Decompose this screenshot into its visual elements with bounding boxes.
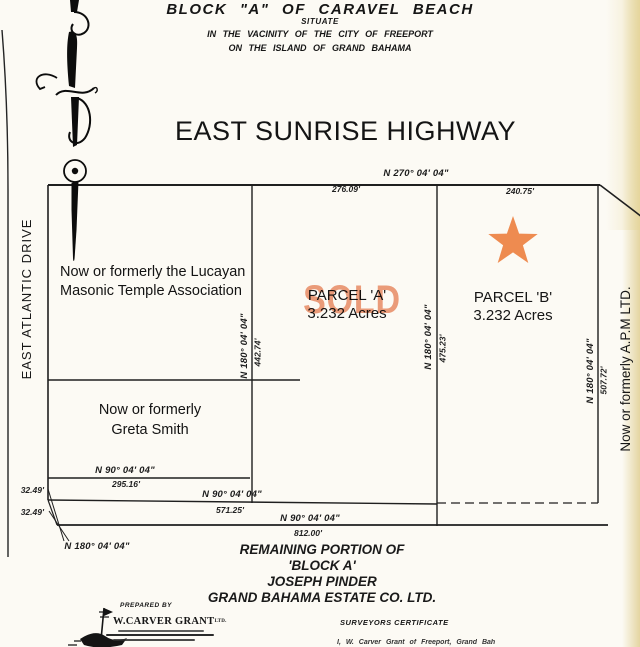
greta-parcel-line2: Greta Smith [70, 420, 230, 440]
lighthouse-icon [68, 608, 127, 647]
scanned-survey-plat: BLOCK "A" OF CARAVEL BEACH SITUATE IN TH… [0, 0, 640, 647]
remaining-line1: REMAINING PORTION OF [142, 542, 502, 558]
dim-ab-divider-distance: 475.23' [438, 313, 449, 385]
star-icon [488, 216, 537, 263]
dim-mid-bearing: N 90° 04' 04" [184, 489, 280, 501]
island-label: ON THE ISLAND OF GRAND BAHAMA [0, 43, 640, 53]
road-edge-line [2, 30, 8, 557]
apm-owner-label: Now or formerly A.P.M LTD. [618, 249, 634, 489]
remaining-line2: 'BLOCK A' [142, 558, 502, 574]
east-atlantic-drive-label: EAST ATLANTIC DRIVE [19, 194, 35, 404]
dim-east-boundary-bearing: N 180° 04' 04" [585, 323, 597, 419]
surveyor-name: W.CARVER GRANTLTD. [113, 616, 227, 627]
remaining-line3: JOSEPH PINDER [142, 574, 502, 590]
masonic-parcel-line1: Now or formerly the Lucayan [60, 263, 245, 282]
greta-parcel-label: Now or formerly Greta Smith [70, 400, 230, 440]
dim-east-boundary-distance: 507.72' [599, 345, 610, 417]
east-sunrise-highway-label: EAST SUNRISE HIGHWAY [175, 116, 445, 147]
masonic-parcel-line2: Masonic Temple Association [60, 282, 242, 301]
vicinity-label: IN THE VACINITY OF THE CITY OF FREEPORT [0, 29, 640, 39]
dim-offset-b: 32.49' [10, 507, 44, 518]
parcel-b-name: PARCEL 'B' [453, 289, 573, 306]
situate-label: SITUATE [0, 17, 640, 26]
dim-offset-a: 32.49' [10, 485, 44, 496]
surveyor-address-line [118, 630, 204, 632]
remaining-line4: GRAND BAHAMA ESTATE CO. LTD. [142, 590, 502, 606]
remaining-portion-label: REMAINING PORTION OF 'BLOCK A' JOSEPH PI… [142, 542, 502, 606]
greta-parcel-line1: Now or formerly [70, 400, 230, 420]
sold-stamp: SOLD [284, 278, 420, 323]
dim-mid-distance: 571.25' [202, 505, 258, 516]
dim-top-bearing: N 270° 04' 04" [368, 168, 464, 180]
dim-greta-distance: 295.16' [98, 479, 154, 490]
dim-south-distance: 812.00' [280, 528, 336, 539]
dim-offset-bearing: N 180° 04' 04" [49, 541, 145, 553]
dim-ab-divider-bearing: N 180° 04' 04" [423, 289, 435, 385]
dim-masonic-divider-distance: 442.74' [253, 317, 264, 389]
surveyor-name-suffix: LTD. [214, 619, 226, 624]
plat-title: BLOCK "A" OF CARAVEL BEACH [0, 1, 640, 18]
dim-greta-bearing: N 90° 04' 04" [77, 465, 173, 477]
surveyor-name-text: W.CARVER GRANT [113, 616, 214, 627]
dim-south-bearing: N 90° 04' 04" [262, 513, 358, 525]
certificate-text: I, W. Carver Grant of Freeport, Grand Ba… [337, 639, 637, 647]
dim-masonic-divider-bearing: N 180° 04' 04" [239, 298, 251, 394]
prepared-by-label: PREPARED BY [120, 602, 172, 609]
leader-lines [48, 489, 69, 541]
north-arrow-icon [36, 0, 97, 261]
surveyors-certificate-title: SURVEYORS CERTIFICATE [340, 618, 449, 627]
dim-top-distance-a: 276.09' [318, 184, 374, 195]
dim-top-distance-b: 240.75' [490, 186, 550, 197]
parcel-b-area: 3.232 Acres [453, 307, 573, 324]
surveyor-address-line [113, 639, 195, 641]
